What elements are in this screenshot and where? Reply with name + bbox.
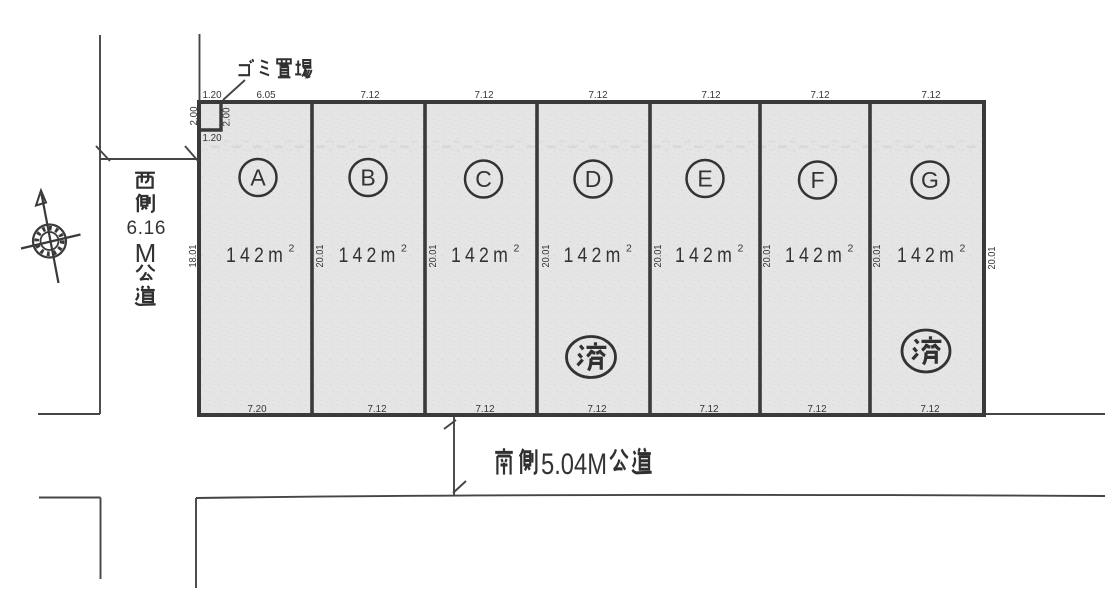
svg-text:7.12: 7.12	[921, 403, 940, 415]
svg-text:142m: 142m	[564, 244, 625, 267]
svg-text:D: D	[585, 166, 602, 192]
svg-text:20.01: 20.01	[987, 246, 998, 269]
svg-text:7.12: 7.12	[811, 89, 830, 101]
svg-text:6.16: 6.16	[127, 218, 166, 239]
svg-text:20.01: 20.01	[762, 244, 773, 267]
svg-text:M: M	[135, 238, 157, 268]
svg-text:7.20: 7.20	[248, 403, 267, 415]
svg-text:142m: 142m	[339, 244, 400, 267]
svg-text:5.04M: 5.04M	[541, 448, 607, 481]
svg-text:20.01: 20.01	[428, 244, 439, 267]
svg-text:142m: 142m	[451, 244, 512, 267]
svg-text:1.20: 1.20	[203, 132, 222, 144]
svg-text:20.01: 20.01	[541, 244, 552, 267]
svg-text:18.01: 18.01	[188, 244, 199, 267]
svg-text:142m: 142m	[226, 244, 287, 267]
svg-text:7.12: 7.12	[922, 89, 941, 101]
svg-text:7.12: 7.12	[589, 89, 608, 101]
svg-text:7.12: 7.12	[476, 403, 495, 415]
svg-text:B: B	[360, 165, 375, 191]
svg-text:142m: 142m	[897, 244, 958, 267]
svg-text:2: 2	[401, 243, 407, 255]
svg-text:A: A	[250, 165, 266, 191]
svg-text:2.00: 2.00	[189, 106, 200, 125]
svg-text:6.05: 6.05	[257, 89, 276, 101]
svg-text:G: G	[921, 167, 939, 193]
svg-text:2: 2	[960, 243, 966, 255]
svg-text:7.12: 7.12	[475, 89, 494, 101]
svg-text:7.12: 7.12	[588, 403, 607, 415]
svg-text:E: E	[697, 166, 712, 192]
svg-text:7.12: 7.12	[361, 89, 380, 101]
svg-text:20.01: 20.01	[872, 244, 883, 267]
svg-text:7.12: 7.12	[808, 403, 827, 415]
svg-text:2: 2	[514, 243, 520, 255]
svg-text:7.12: 7.12	[702, 89, 721, 101]
svg-text:20.01: 20.01	[315, 244, 326, 267]
svg-text:2.00: 2.00	[222, 107, 233, 126]
svg-text:2: 2	[289, 243, 295, 255]
svg-text:2: 2	[626, 243, 632, 255]
svg-text:C: C	[475, 166, 492, 192]
svg-text:1.20: 1.20	[203, 89, 222, 101]
svg-text:7.12: 7.12	[368, 403, 387, 415]
svg-text:142m: 142m	[785, 244, 846, 267]
svg-text:2: 2	[848, 243, 854, 255]
svg-text:142m: 142m	[675, 244, 736, 267]
svg-text:20.01: 20.01	[653, 244, 664, 267]
svg-text:F: F	[810, 167, 824, 193]
svg-text:7.12: 7.12	[700, 403, 719, 415]
svg-text:2: 2	[738, 243, 744, 255]
